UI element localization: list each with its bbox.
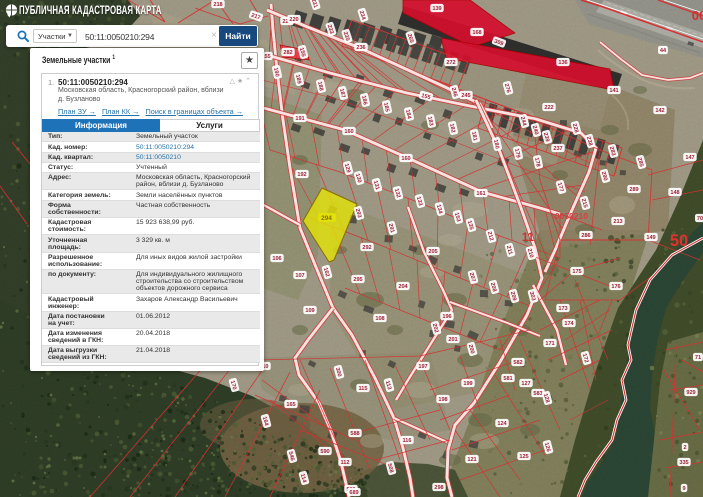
svg-text:201: 201 — [448, 337, 457, 343]
svg-text:142: 142 — [655, 108, 664, 114]
svg-text:161: 161 — [476, 191, 485, 197]
svg-text:582: 582 — [513, 360, 522, 366]
svg-text:205: 205 — [428, 249, 437, 255]
svg-text:294: 294 — [321, 215, 332, 222]
svg-text:2: 2 — [683, 445, 686, 451]
svg-text:160: 160 — [401, 156, 410, 162]
svg-text:112: 112 — [340, 460, 349, 466]
svg-text:335: 335 — [679, 460, 688, 466]
svg-text:127: 127 — [521, 381, 530, 387]
svg-text:286: 286 — [581, 233, 590, 239]
svg-text:590: 590 — [320, 449, 329, 455]
svg-text:196: 196 — [442, 314, 451, 320]
svg-text:175: 175 — [572, 269, 581, 275]
svg-text:292: 292 — [362, 245, 371, 251]
svg-text:289: 289 — [629, 187, 638, 193]
svg-text:199: 199 — [463, 381, 472, 387]
svg-text:191: 191 — [295, 116, 304, 122]
svg-text:147: 147 — [685, 155, 694, 161]
svg-text:588: 588 — [350, 431, 359, 437]
svg-text:70: 70 — [697, 216, 703, 222]
svg-text:44: 44 — [660, 48, 667, 54]
svg-text:139: 139 — [432, 6, 441, 12]
svg-text:00: 00 — [692, 8, 703, 23]
svg-text:108: 108 — [375, 316, 384, 322]
svg-text:121: 121 — [467, 457, 476, 463]
svg-text::0050210: :0050210 — [552, 211, 588, 221]
svg-text:160: 160 — [344, 129, 353, 135]
svg-text:298: 298 — [434, 485, 443, 491]
svg-text:236: 236 — [356, 45, 365, 51]
svg-text:136: 136 — [558, 60, 567, 66]
svg-text:218: 218 — [213, 2, 222, 8]
svg-text:168: 168 — [472, 30, 481, 36]
svg-text:109: 109 — [305, 308, 314, 314]
svg-text:174: 174 — [564, 321, 574, 327]
svg-text:141: 141 — [609, 88, 618, 94]
svg-text:295: 295 — [353, 277, 362, 283]
svg-text:106: 106 — [272, 256, 281, 262]
svg-text:171: 171 — [545, 341, 554, 347]
svg-text:71: 71 — [695, 355, 701, 361]
svg-text:116: 116 — [402, 438, 411, 444]
svg-text:245: 245 — [461, 93, 470, 99]
svg-text:282: 282 — [283, 50, 292, 56]
svg-text:583: 583 — [533, 391, 542, 397]
svg-text:148: 148 — [670, 190, 679, 196]
svg-text:50: 50 — [670, 232, 688, 250]
svg-text:237: 237 — [553, 146, 562, 152]
svg-text:198: 198 — [438, 397, 447, 403]
svg-text:272: 272 — [446, 60, 455, 66]
svg-text:176: 176 — [611, 284, 620, 290]
svg-text:929: 929 — [686, 390, 695, 396]
svg-text:165: 165 — [286, 402, 295, 408]
svg-text:115: 115 — [358, 386, 367, 392]
svg-text:124: 124 — [497, 421, 507, 427]
svg-text:220: 220 — [289, 17, 298, 23]
svg-text:689: 689 — [349, 490, 358, 496]
svg-text:107: 107 — [295, 273, 304, 279]
svg-text:9: 9 — [682, 486, 685, 492]
svg-text:581: 581 — [503, 376, 512, 382]
svg-text:125: 125 — [519, 454, 528, 460]
svg-text:197: 197 — [418, 364, 427, 370]
svg-text:222: 222 — [544, 105, 553, 111]
svg-text:11: 11 — [522, 232, 535, 244]
svg-text:213: 213 — [613, 219, 622, 225]
svg-text:149: 149 — [646, 235, 655, 241]
svg-text:204: 204 — [398, 284, 408, 290]
svg-text:192: 192 — [297, 172, 306, 178]
svg-text:173: 173 — [558, 306, 567, 312]
